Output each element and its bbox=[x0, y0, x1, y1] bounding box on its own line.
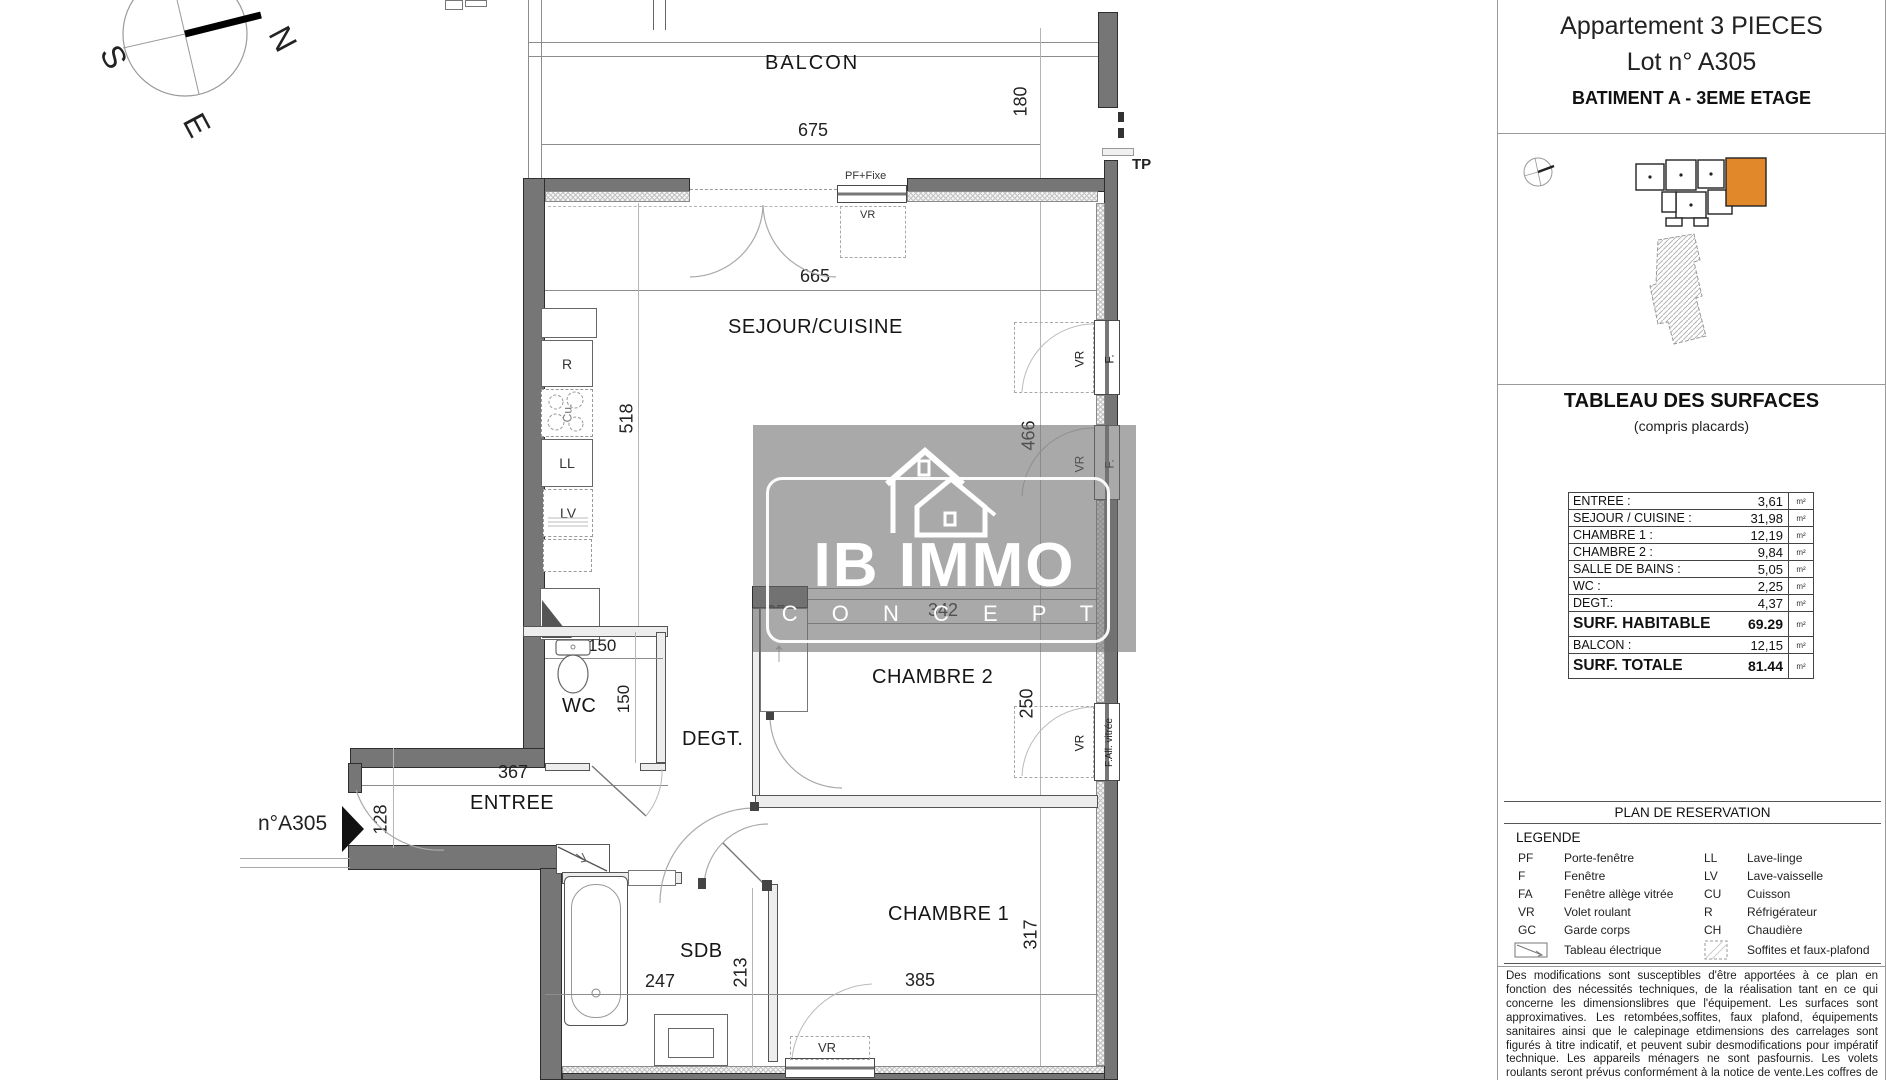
cooktop-box: Cu. bbox=[541, 389, 593, 437]
cut-off-label-box bbox=[465, 0, 487, 7]
dimension-128: 128 bbox=[368, 796, 394, 842]
legend-abbr: F bbox=[1518, 869, 1525, 883]
surfaces-title: TABLEAU DES SURFACES bbox=[1498, 390, 1885, 413]
tp-tick bbox=[1118, 128, 1124, 138]
dimension-180: 180 bbox=[1008, 76, 1034, 126]
title-panel: Appartement 3 PIECES Lot n° A305 BATIMEN… bbox=[1497, 0, 1886, 1080]
lintel-dashed-line bbox=[548, 206, 838, 207]
reservation-header: PLAN DE RESERVATION bbox=[1504, 801, 1881, 824]
lot-number-label: n°A305 bbox=[258, 812, 327, 836]
wall-insulation bbox=[545, 191, 690, 202]
compass-needle bbox=[185, 15, 261, 34]
room-label-entree: ENTREE bbox=[470, 792, 554, 815]
legend-label: Réfrigérateur bbox=[1747, 905, 1817, 919]
dimension-line-675 bbox=[542, 144, 1040, 145]
fa-label-rotated: F.All. vitrée bbox=[1100, 708, 1118, 776]
fridge-box: R bbox=[541, 340, 593, 387]
electrical-panel-symbol bbox=[556, 844, 610, 874]
balcony-side-rail bbox=[528, 0, 542, 178]
divider bbox=[1498, 966, 1885, 967]
legend-label: Fenêtre bbox=[1564, 869, 1605, 883]
watermark-title: IB IMMO bbox=[753, 535, 1136, 597]
kitchen-counter-box bbox=[543, 539, 592, 572]
dimension-line-150 bbox=[545, 658, 663, 659]
legend-abbr: FA bbox=[1518, 887, 1533, 901]
wall-segment bbox=[348, 845, 562, 870]
divider bbox=[1498, 133, 1885, 134]
key-plan bbox=[1508, 140, 1878, 375]
dimension-675: 675 bbox=[798, 120, 828, 141]
partition-wall bbox=[545, 763, 590, 771]
wall-insulation bbox=[1096, 781, 1105, 1066]
legend-abbr: GC bbox=[1518, 923, 1536, 937]
wall-insulation bbox=[1096, 203, 1105, 320]
sdb-niche bbox=[628, 870, 676, 886]
bathtub-inner bbox=[571, 884, 621, 1018]
building-floor: BATIMENT A - 3EME ETAGE bbox=[1498, 88, 1885, 109]
pf-fixe-label: PF+Fixe bbox=[845, 170, 886, 182]
legend-label: Lave-vaisselle bbox=[1747, 869, 1823, 883]
compass-south-label: S bbox=[93, 39, 135, 75]
legend-abbr: LV bbox=[1704, 869, 1718, 883]
legend-title: LEGENDE bbox=[1516, 830, 1581, 845]
compass-east-label: E bbox=[176, 107, 218, 143]
dimension-665: 665 bbox=[800, 266, 830, 287]
dimension-317: 317 bbox=[1018, 908, 1044, 960]
legend-abbr: PF bbox=[1518, 851, 1533, 865]
table-row: DEGT.:4,37m² bbox=[1568, 595, 1814, 612]
cut-off-label-box bbox=[445, 0, 463, 10]
wall-segment bbox=[348, 763, 362, 793]
compass-circle bbox=[123, 0, 247, 96]
dimension-213: 213 bbox=[728, 948, 754, 996]
watermark-house-logo bbox=[879, 439, 1009, 539]
room-label-chambre2: CHAMBRE 2 bbox=[872, 666, 993, 689]
dimension-line-247-385 bbox=[545, 994, 1098, 995]
table-row: SALLE DE BAINS :5,05m² bbox=[1568, 561, 1814, 578]
door-opening-dashed bbox=[690, 189, 837, 190]
wall-insulation bbox=[1096, 395, 1105, 425]
tp-sill bbox=[1102, 148, 1134, 156]
legend-abbr: R bbox=[1704, 905, 1713, 919]
table-row-total: SURF. HABITABLE69.29m² bbox=[1568, 612, 1814, 637]
washer-box: LL bbox=[541, 439, 593, 487]
legend-label: Tableau électrique bbox=[1564, 943, 1661, 957]
wall-segment bbox=[907, 178, 1118, 192]
window-chambre1 bbox=[785, 1058, 875, 1078]
legend-abbr: CU bbox=[1704, 887, 1721, 901]
dimension-247: 247 bbox=[645, 971, 675, 992]
room-label-degt: DEGT. bbox=[682, 728, 743, 751]
vr-label-rotated: VR bbox=[1070, 726, 1088, 760]
legend-label: Fenêtre allège vitrée bbox=[1564, 887, 1673, 901]
partition-wall bbox=[656, 632, 666, 763]
partition-wall bbox=[640, 763, 666, 771]
table-row: ENTREE :3,61m² bbox=[1568, 493, 1814, 510]
key-plan-highlighted-unit bbox=[1726, 158, 1766, 206]
legend-label: Lave-linge bbox=[1747, 851, 1802, 865]
electrical-panel-legend-icon bbox=[1514, 942, 1548, 958]
watermark: IB IMMO C O N C E P T bbox=[753, 425, 1136, 652]
wall-segment bbox=[523, 178, 690, 192]
dimension-250: 250 bbox=[1014, 678, 1040, 728]
vr-label: VR bbox=[818, 1040, 836, 1055]
watermark-subtitle: C O N C E P T bbox=[753, 603, 1136, 625]
lot-number: Lot n° A305 bbox=[1498, 48, 1885, 77]
wall-segment bbox=[1098, 12, 1118, 108]
dishwasher-box: LV bbox=[543, 489, 593, 537]
partition-wall bbox=[755, 795, 1098, 808]
vr-label-rotated: VR bbox=[1070, 342, 1088, 376]
compass-rose: N S E bbox=[85, 0, 325, 150]
dimension-385: 385 bbox=[905, 970, 935, 991]
dimension-line-367 bbox=[362, 785, 668, 786]
disclaimer-text: Des modifications sont susceptibles d'êt… bbox=[1506, 970, 1878, 1080]
room-label-sejour: SEJOUR/CUISINE bbox=[728, 316, 903, 339]
apartment-type: Appartement 3 PIECES bbox=[1498, 12, 1885, 41]
key-plan-footprint bbox=[1650, 234, 1706, 344]
wall-segment bbox=[540, 868, 562, 1080]
f-label-rotated: F. bbox=[1102, 342, 1118, 376]
legend-label: Chaudière bbox=[1747, 923, 1802, 937]
balcony-rail-divider bbox=[653, 0, 666, 30]
room-label-chambre1: CHAMBRE 1 bbox=[888, 903, 1009, 926]
tp-tick bbox=[1118, 112, 1124, 122]
divider bbox=[1498, 384, 1885, 385]
dimension-367: 367 bbox=[498, 762, 528, 783]
legend-label: Porte-fenêtre bbox=[1564, 851, 1634, 865]
legend-box: LEGENDE PF Porte-fenêtre F Fenêtre FA Fe… bbox=[1504, 824, 1881, 964]
dimension-150-depth: 150 bbox=[612, 676, 636, 722]
partition-wall bbox=[768, 884, 778, 1062]
key-plan-units bbox=[1636, 158, 1766, 226]
room-label-wc: WC bbox=[562, 695, 596, 718]
legend-abbr: VR bbox=[1518, 905, 1535, 919]
sdb-sink-basin bbox=[668, 1028, 714, 1058]
landing-lines bbox=[240, 858, 350, 868]
table-row: SEJOUR / CUISINE :31,98m² bbox=[1568, 510, 1814, 527]
surfaces-table: ENTREE :3,61m² SEJOUR / CUISINE :31,98m²… bbox=[1568, 492, 1814, 679]
window-pf-fixe bbox=[837, 185, 907, 203]
room-label-sdb: SDB bbox=[680, 940, 723, 963]
tp-label: TP bbox=[1132, 156, 1151, 173]
dimension-line-665 bbox=[545, 290, 1098, 291]
legend-label: Soffites et faux-plafond bbox=[1747, 943, 1870, 957]
balcony-railing-line bbox=[528, 42, 1118, 43]
legend-label: Cuisson bbox=[1747, 887, 1790, 901]
kitchen-counter-box bbox=[541, 308, 597, 338]
table-row: CHAMBRE 1 :12,19m² bbox=[1568, 527, 1814, 544]
wall-insulation bbox=[907, 191, 1098, 202]
plan-linework bbox=[0, 0, 1500, 1080]
entry-arrow bbox=[342, 806, 364, 852]
dimension-150-width: 150 bbox=[588, 636, 616, 656]
legend-label: Garde corps bbox=[1564, 923, 1630, 937]
compass-north-label: N bbox=[262, 20, 305, 57]
table-row: CHAMBRE 2 :9,84m² bbox=[1568, 544, 1814, 561]
table-row: BALCON :12,15m² bbox=[1568, 637, 1814, 654]
vr-label: VR bbox=[860, 209, 875, 221]
soffit-legend-icon bbox=[1704, 940, 1728, 960]
legend-abbr: LL bbox=[1704, 851, 1717, 865]
table-row: WC :2,25m² bbox=[1568, 578, 1814, 595]
floor-plan-sheet: N S E BALCON 675 180 TP PF+Fixe VR 665 V… bbox=[0, 0, 1886, 1080]
dimension-518: 518 bbox=[614, 393, 640, 443]
legend-label: Volet roulant bbox=[1564, 905, 1631, 919]
table-row-total: SURF. TOTALE81.44m² bbox=[1568, 654, 1814, 679]
surfaces-subtitle: (compris placards) bbox=[1498, 418, 1885, 434]
room-label-balcon: BALCON bbox=[765, 52, 859, 75]
legend-abbr: CH bbox=[1704, 923, 1721, 937]
